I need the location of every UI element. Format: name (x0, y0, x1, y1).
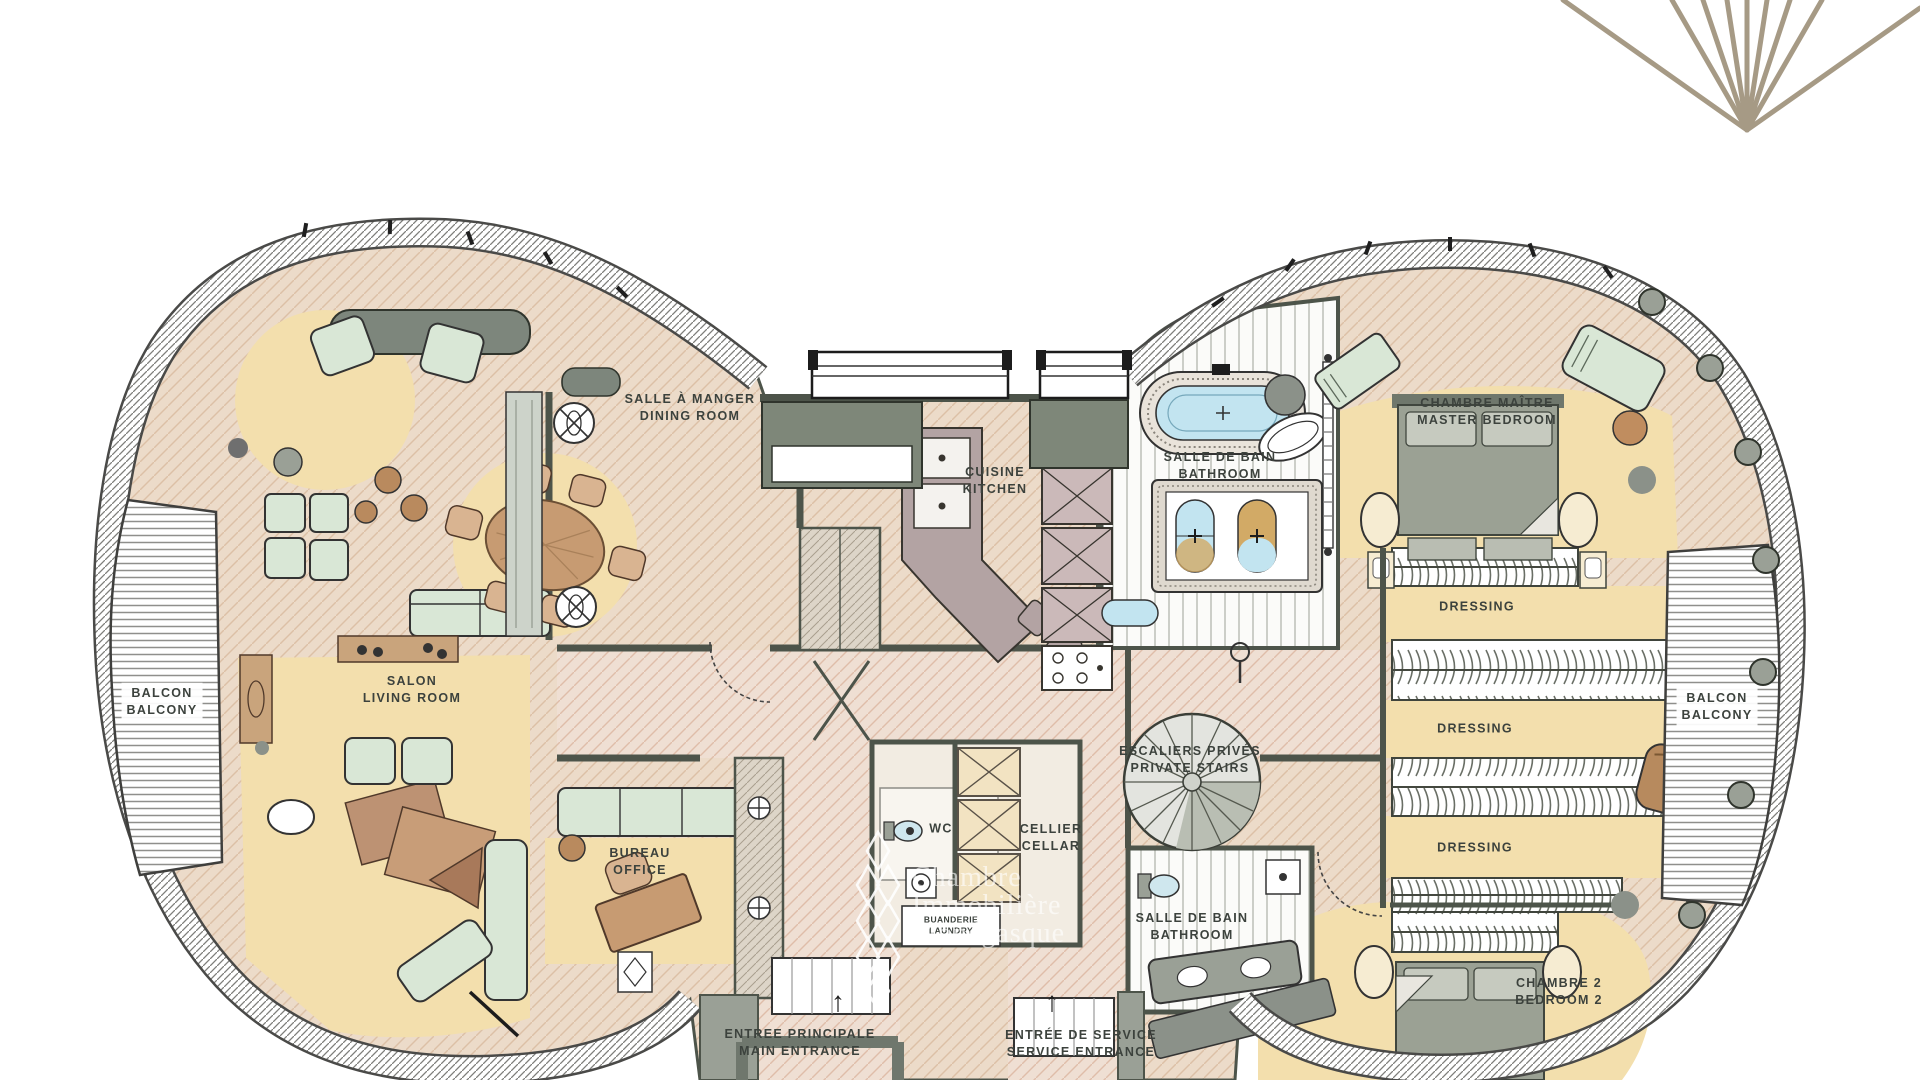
room-label-private-stairs: ESCALIERS PRIVÉS PRIVATE STAIRS (1119, 743, 1261, 778)
stove-icon (1042, 646, 1112, 690)
label-main-entrance: ENTREE PRINCIPALE MAIN ENTRANCE (724, 1026, 875, 1061)
room-label-office: BUREAU OFFICE (609, 845, 670, 880)
main-entrance-arrow-icon: ↑ (831, 986, 845, 1018)
spiral-staircase-icon (1124, 714, 1260, 850)
room-label-kitchen: CUISINE KITCHEN (963, 464, 1028, 499)
room-label-dressing-3: DRESSING (1437, 839, 1513, 856)
room-label-balcony-left: BALCON BALCONY (122, 683, 203, 722)
vent-icon (556, 587, 596, 627)
watermark-text-line3: Monégasque (912, 918, 1065, 950)
double-vanity-icon (1152, 480, 1322, 592)
room-label-dining-en: DINING ROOM (625, 408, 756, 425)
room-label-wc: WC (929, 820, 952, 837)
appliance-column-icon (1042, 468, 1112, 642)
service-entrance-arrow-icon: ↑ (1045, 986, 1059, 1018)
sofa-icon (558, 788, 744, 836)
vent-icon (554, 403, 594, 443)
room-label-dining: SALLE À MANGER DINING ROOM (625, 391, 756, 426)
toilet-icon (884, 821, 922, 841)
sofa-icon (485, 840, 527, 1000)
room-label-cellar: CELLIER CELLAR (1020, 821, 1083, 856)
label-service-entrance: ENTRÉE DE SERVICE SERVICE ENTRANCE (1005, 1027, 1157, 1062)
room-label-dressing-2: DRESSING (1437, 720, 1513, 737)
room-label-balcony-right: BALCON BALCONY (1677, 688, 1758, 727)
room-label-living-room: SALON LIVING ROOM (363, 673, 461, 708)
room-label-bathroom-2: SALLE DE BAIN BATHROOM (1136, 910, 1249, 945)
floor-plan-page: SALLE À MANGER DINING ROOM CUISINE KITCH… (0, 0, 1920, 1080)
room-label-dressing-1: DRESSING (1439, 598, 1515, 615)
room-label-master-bedroom: CHAMBRE MAÎTRE MASTER BEDROOM (1417, 395, 1557, 430)
room-label-bedroom-2: CHAMBRE 2 BEDROOM 2 (1515, 975, 1602, 1010)
room-label-dining-fr: SALLE À MANGER (625, 391, 756, 408)
fan-logo (1563, 0, 1920, 130)
room-label-master-bathroom: SALLE DE BAIN BATHROOM (1164, 449, 1277, 484)
toilet-icon (1138, 874, 1179, 898)
